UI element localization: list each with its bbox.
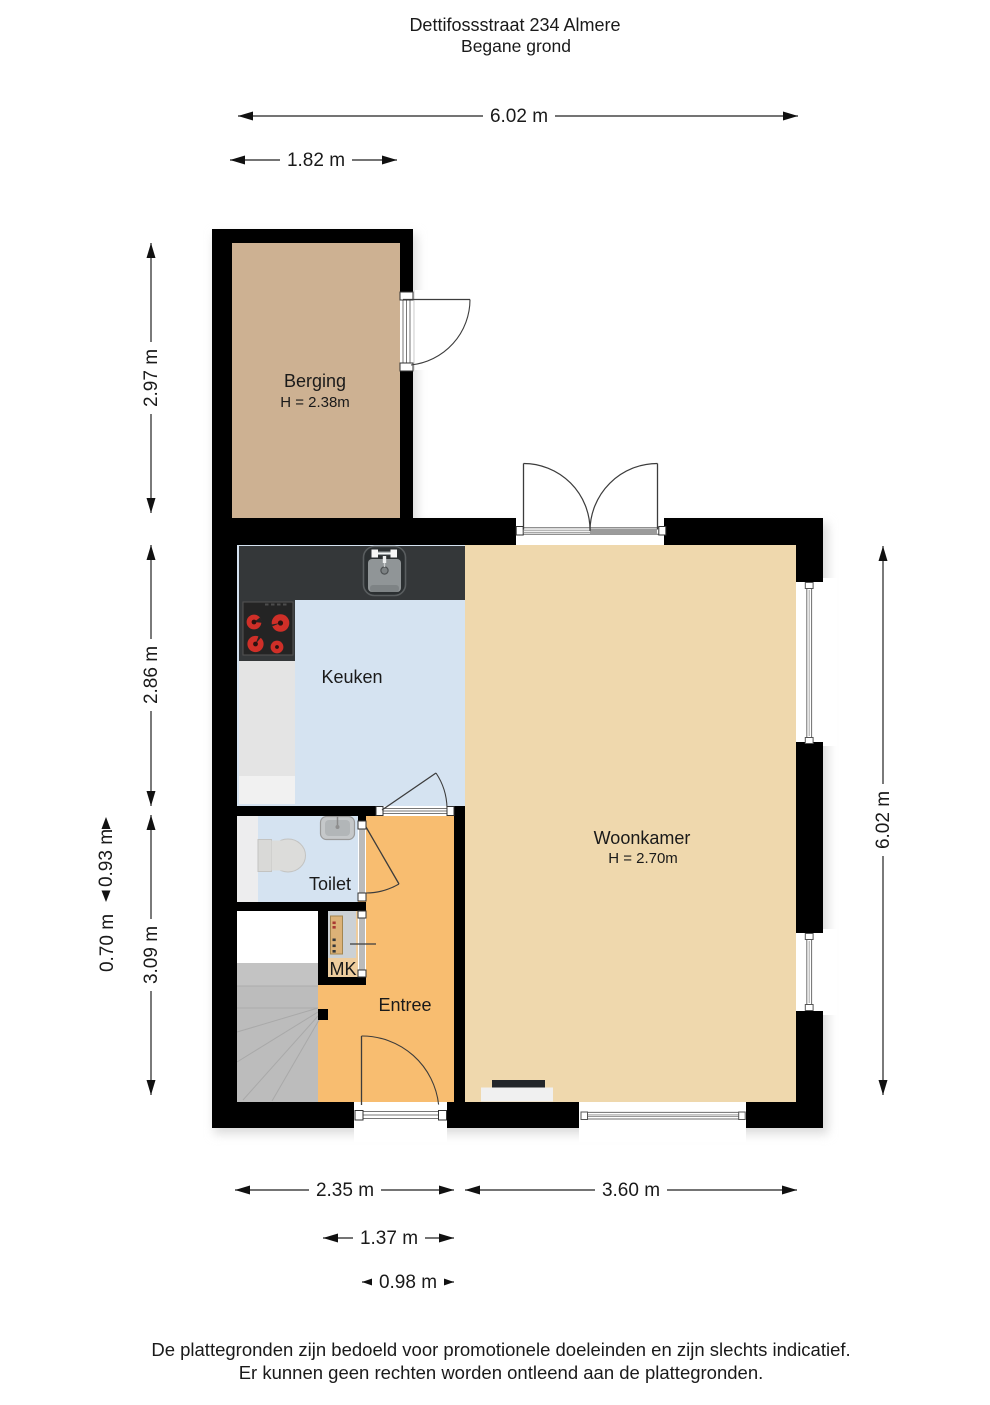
svg-text:Dettifossstraat 234 Almere: Dettifossstraat 234 Almere: [409, 15, 620, 35]
svg-text:H = 2.70m: H = 2.70m: [608, 850, 678, 867]
svg-text:Entree: Entree: [378, 995, 431, 1015]
svg-text:H = 2.38m: H = 2.38m: [280, 394, 350, 411]
svg-text:Berging: Berging: [284, 371, 346, 391]
svg-text:1.82 m: 1.82 m: [287, 150, 345, 171]
svg-text:3.09 m: 3.09 m: [141, 926, 162, 984]
svg-text:Begane grond: Begane grond: [461, 36, 571, 56]
svg-text:2.86 m: 2.86 m: [141, 646, 162, 704]
svg-text:Er kunnen geen rechten worden: Er kunnen geen rechten worden ontleend a…: [239, 1362, 764, 1383]
svg-text:6.02 m: 6.02 m: [873, 791, 894, 849]
svg-text:6.02 m: 6.02 m: [490, 106, 548, 127]
svg-text:0.98 m: 0.98 m: [379, 1272, 437, 1293]
svg-text:1.37 m: 1.37 m: [360, 1228, 418, 1249]
svg-text:De plattegronden zijn bedoeld: De plattegronden zijn bedoeld voor promo…: [151, 1339, 850, 1360]
svg-text:Woonkamer: Woonkamer: [594, 828, 691, 848]
svg-text:Toilet: Toilet: [309, 874, 351, 894]
svg-text:2.35 m: 2.35 m: [316, 1180, 374, 1201]
svg-text:Keuken: Keuken: [321, 667, 382, 687]
svg-text:0.70 m: 0.70 m: [97, 914, 118, 972]
svg-text:3.60 m: 3.60 m: [602, 1180, 660, 1201]
svg-text:MK: MK: [330, 959, 357, 979]
svg-text:0.93 m: 0.93 m: [96, 829, 117, 887]
svg-text:2.97 m: 2.97 m: [141, 349, 162, 407]
